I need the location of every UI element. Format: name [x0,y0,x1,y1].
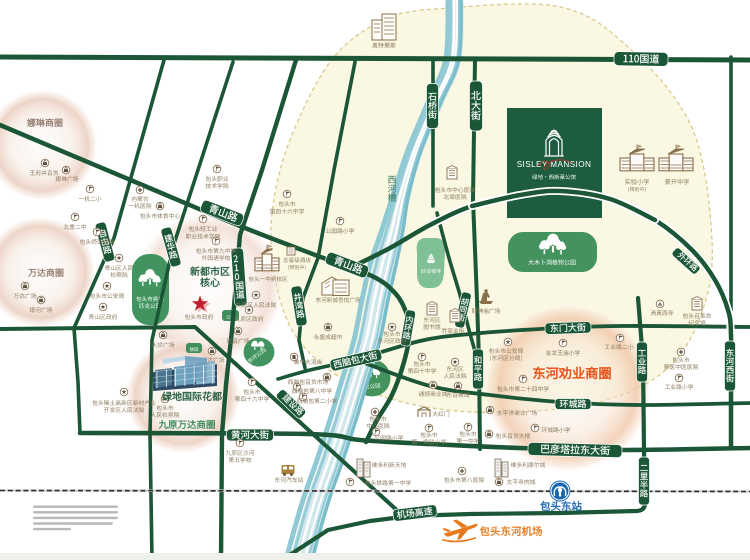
svg-text:SISLEY MANSION: SISLEY MANSION [517,160,592,169]
